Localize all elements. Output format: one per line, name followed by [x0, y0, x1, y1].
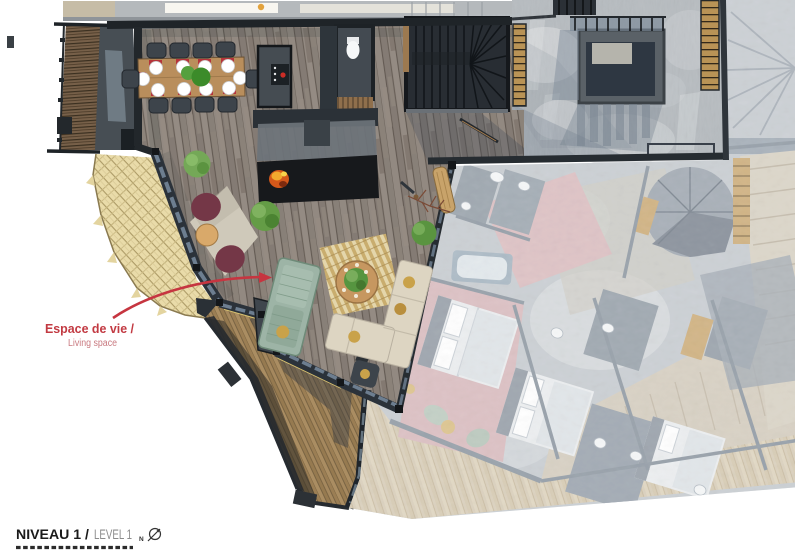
svg-text:Espace de vie /: Espace de vie / [45, 322, 135, 336]
svg-text:LEVEL 1: LEVEL 1 [94, 527, 132, 542]
svg-text:NIVEAU 1 /: NIVEAU 1 / [16, 527, 89, 542]
svg-text:N: N [139, 536, 144, 543]
svg-text:Living space: Living space [68, 338, 117, 349]
